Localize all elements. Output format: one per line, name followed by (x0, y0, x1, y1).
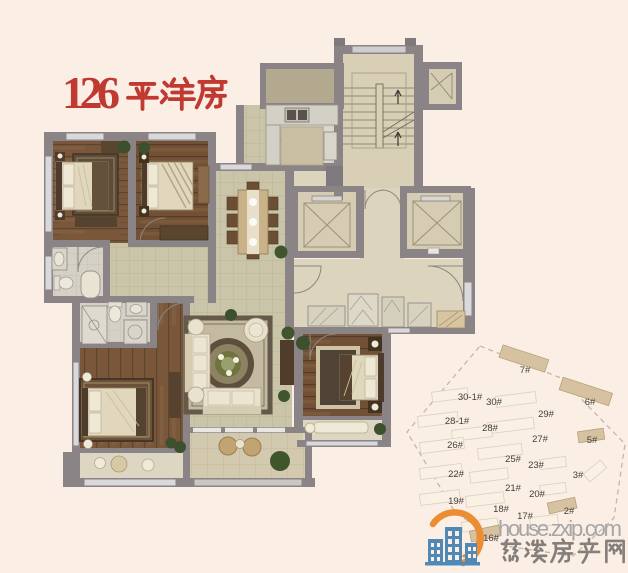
svg-text:29#: 29# (538, 409, 555, 420)
svg-text:22#: 22# (448, 469, 465, 480)
svg-text:25#: 25# (505, 454, 522, 465)
svg-text:18#: 18# (493, 504, 510, 515)
svg-text:28#: 28# (482, 423, 499, 434)
svg-text:21#: 21# (505, 483, 522, 494)
svg-text:27#: 27# (532, 434, 549, 445)
svg-text:23#: 23# (528, 460, 545, 471)
svg-text:19#: 19# (448, 496, 465, 507)
svg-text:house.zxip.com: house.zxip.com (498, 516, 622, 541)
svg-text:3#: 3# (573, 470, 584, 481)
svg-text:26#: 26# (447, 440, 464, 451)
svg-text:30-1#: 30-1# (458, 392, 483, 403)
svg-text:126: 126 (62, 67, 120, 118)
svg-text:7#: 7# (520, 365, 531, 376)
svg-text:28-1#: 28-1# (445, 416, 470, 427)
svg-text:30#: 30# (486, 397, 503, 408)
svg-text:20#: 20# (529, 489, 546, 500)
svg-text:6#: 6# (585, 397, 596, 408)
svg-text:5#: 5# (587, 435, 598, 446)
